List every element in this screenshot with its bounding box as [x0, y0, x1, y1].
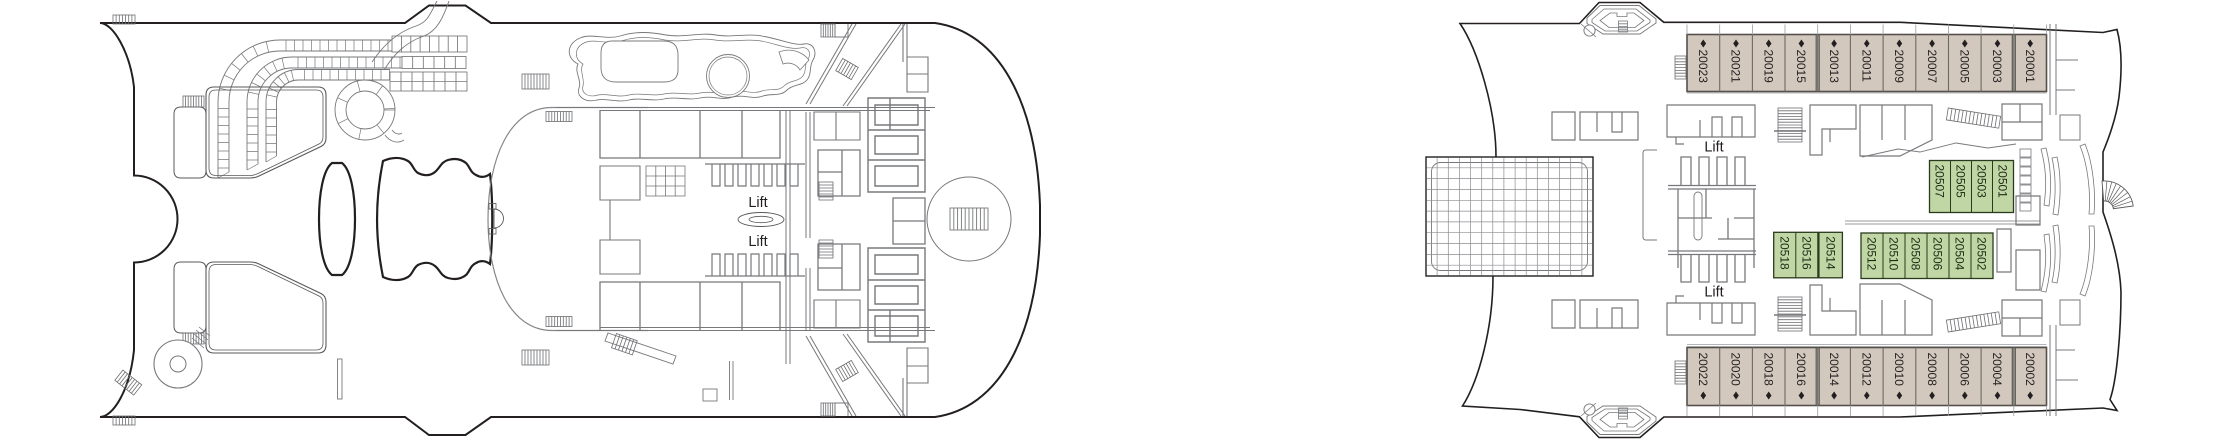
svg-text:20016: 20016	[1794, 353, 1808, 387]
svg-text:20503: 20503	[1975, 165, 1989, 199]
svg-text:20505: 20505	[1954, 165, 1968, 199]
svg-text:20019: 20019	[1761, 50, 1775, 84]
svg-text:20518: 20518	[1778, 236, 1792, 270]
svg-text:20010: 20010	[1892, 353, 1906, 387]
svg-text:20004: 20004	[1990, 353, 2004, 387]
svg-text:20008: 20008	[1925, 353, 1939, 387]
svg-text:20012: 20012	[1860, 353, 1874, 387]
svg-text:20011: 20011	[1860, 50, 1874, 83]
svg-text:20022: 20022	[1696, 353, 1710, 387]
svg-text:20512: 20512	[1865, 237, 1879, 271]
svg-text:20504: 20504	[1953, 237, 1967, 271]
svg-text:20001: 20001	[2023, 50, 2037, 84]
svg-text:20514: 20514	[1823, 236, 1837, 270]
svg-text:20023: 20023	[1696, 50, 1710, 84]
svg-text:Lift: Lift	[748, 234, 767, 250]
svg-text:Lift: Lift	[748, 195, 767, 211]
svg-text:20507: 20507	[1933, 165, 1947, 199]
svg-text:20020: 20020	[1729, 353, 1743, 387]
svg-text:20005: 20005	[1958, 50, 1972, 84]
svg-text:20015: 20015	[1794, 50, 1808, 84]
svg-text:20501: 20501	[1996, 165, 2010, 199]
svg-text:20508: 20508	[1909, 237, 1923, 271]
svg-text:20014: 20014	[1827, 353, 1841, 387]
svg-text:20003: 20003	[1990, 50, 2004, 84]
svg-text:Lift: Lift	[1704, 285, 1723, 301]
svg-text:20002: 20002	[2023, 353, 2037, 387]
svg-text:20009: 20009	[1892, 50, 1906, 84]
svg-text:20007: 20007	[1925, 50, 1939, 84]
svg-text:Lift: Lift	[1704, 140, 1723, 156]
svg-text:20510: 20510	[1887, 237, 1901, 271]
svg-text:20021: 20021	[1729, 50, 1743, 84]
svg-text:20018: 20018	[1761, 353, 1775, 387]
svg-text:20516: 20516	[1800, 236, 1814, 270]
svg-text:20006: 20006	[1958, 353, 1972, 387]
svg-text:20506: 20506	[1931, 237, 1945, 271]
svg-text:20502: 20502	[1975, 237, 1989, 271]
svg-text:20013: 20013	[1827, 50, 1841, 84]
